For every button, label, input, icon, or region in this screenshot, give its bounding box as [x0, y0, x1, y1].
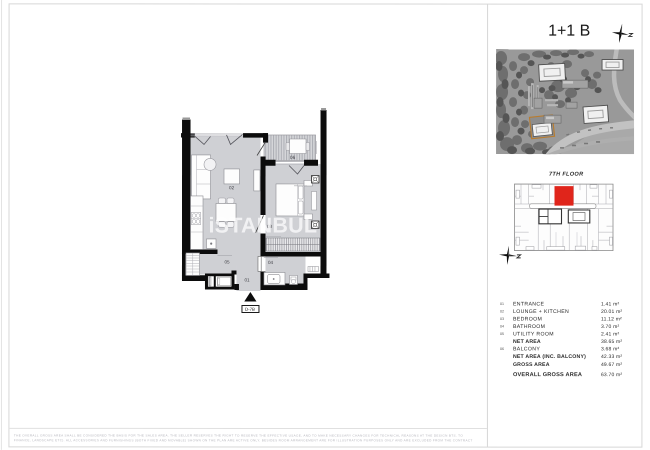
- svg-text:D-7B: D-7B: [245, 307, 255, 312]
- svg-text:49.67 m²: 49.67 m²: [601, 362, 622, 368]
- svg-text:NET AREA (INC. BALCONY): NET AREA (INC. BALCONY): [513, 354, 586, 360]
- svg-text:02: 02: [500, 310, 504, 314]
- svg-text:20.01 m²: 20.01 m²: [601, 309, 622, 315]
- svg-text:NET AREA: NET AREA: [513, 339, 541, 345]
- svg-text:38.65 m²: 38.65 m²: [601, 339, 622, 345]
- svg-text:01: 01: [244, 277, 250, 282]
- svg-text:2.41 m²: 2.41 m²: [601, 331, 619, 337]
- svg-text:04: 04: [500, 325, 504, 329]
- svg-text:FINANCE, LANDSCAPE ETC). ALL A: FINANCE, LANDSCAPE ETC). ALL ACCESSORIES…: [14, 438, 473, 442]
- svg-text:3.70 m²: 3.70 m²: [601, 324, 619, 330]
- svg-text:3.68 m²: 3.68 m²: [601, 346, 619, 352]
- svg-text:GROSS AREA: GROSS AREA: [513, 362, 550, 368]
- svg-text:1.41 m²: 1.41 m²: [601, 301, 619, 307]
- svg-text:03: 03: [500, 317, 504, 321]
- svg-text:01: 01: [500, 302, 504, 306]
- svg-text:THE OVERALL GROSS AREA SHALL B: THE OVERALL GROSS AREA SHALL BE CONSIDER…: [14, 433, 463, 437]
- svg-text:OVERALL GROSS AREA: OVERALL GROSS AREA: [513, 372, 582, 378]
- svg-text:ENTRANCE: ENTRANCE: [513, 301, 545, 307]
- svg-text:1+1 B: 1+1 B: [548, 23, 590, 40]
- svg-text:BALCONY: BALCONY: [513, 346, 540, 352]
- svg-text:42.33 m²: 42.33 m²: [601, 354, 622, 360]
- svg-text:BATHROOM: BATHROOM: [513, 324, 545, 330]
- svg-text:06: 06: [290, 155, 296, 160]
- svg-text:05: 05: [500, 332, 504, 336]
- svg-text:02: 02: [229, 185, 235, 190]
- svg-text:LOUNGE + KITCHEN: LOUNGE + KITCHEN: [513, 309, 569, 315]
- svg-text:BEDROOM: BEDROOM: [513, 316, 542, 322]
- svg-text:7TH FLOOR: 7TH FLOOR: [549, 172, 583, 178]
- svg-text:63.70 m²: 63.70 m²: [601, 372, 622, 378]
- svg-text:06: 06: [500, 347, 504, 351]
- svg-text:11.12 m²: 11.12 m²: [601, 316, 622, 322]
- svg-text:UTILITY ROOM: UTILITY ROOM: [513, 331, 554, 337]
- svg-text:04: 04: [268, 260, 274, 265]
- svg-text:iSTANBUL: iSTANBUL: [208, 213, 317, 237]
- svg-text:05: 05: [224, 259, 230, 264]
